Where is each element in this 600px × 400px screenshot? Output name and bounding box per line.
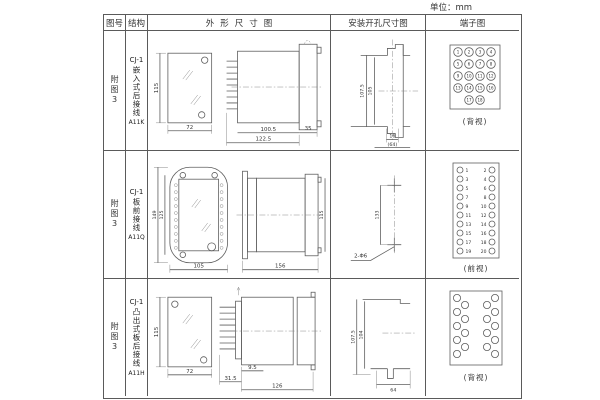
svg-text:13: 13 bbox=[455, 85, 461, 90]
model-code: A11K bbox=[129, 119, 145, 126]
svg-text:20: 20 bbox=[481, 248, 487, 254]
dim-body-length: 156 bbox=[275, 263, 286, 269]
svg-text:17: 17 bbox=[466, 97, 472, 102]
header-fig-no: 图号 bbox=[104, 15, 126, 31]
dim-span: 64 bbox=[390, 387, 396, 393]
svg-text:17: 17 bbox=[466, 239, 472, 245]
dim-front-height: 115 bbox=[154, 327, 160, 337]
header-terminal: 端子图 bbox=[426, 15, 519, 31]
row3-structure: CJ-1 凸出式板后接线 A11H bbox=[126, 279, 148, 396]
view-caption: (背视) bbox=[464, 372, 489, 382]
dim-outer-height: 149 bbox=[152, 210, 158, 219]
svg-text:18: 18 bbox=[477, 97, 483, 102]
svg-text:12: 12 bbox=[488, 73, 494, 78]
dim-body-length: 126 bbox=[272, 384, 283, 390]
svg-text:12: 12 bbox=[481, 212, 487, 218]
svg-text:16: 16 bbox=[488, 85, 494, 90]
row2-terminal-cell: 12 34 56 78 910 1112 1314 1516 1718 1920… bbox=[426, 151, 519, 279]
svg-text:6: 6 bbox=[484, 185, 487, 191]
row3-outline-cell: 115 72 9.5 31.5 126 bbox=[148, 279, 331, 396]
dim-front-width: 72 bbox=[186, 124, 193, 130]
dim-width: 105 bbox=[194, 263, 204, 269]
dim-flange-depth: 35 bbox=[305, 125, 312, 131]
dim-cutout-inner: 104 bbox=[359, 331, 365, 340]
clip-arrow bbox=[237, 287, 240, 295]
dim-inner-height: 125 bbox=[159, 210, 165, 219]
svg-text:2: 2 bbox=[484, 167, 487, 173]
structure-desc: 凸出式板后接线 bbox=[131, 308, 142, 368]
dim-side-height: 115 bbox=[319, 210, 325, 219]
catalog-page: 单位：mm 图号 结构 外形尺寸图 安装开孔尺寸图 端子图 附图3 CJ-1 嵌… bbox=[0, 0, 600, 400]
svg-text:13: 13 bbox=[466, 221, 472, 227]
svg-text:3: 3 bbox=[479, 49, 482, 54]
mount-hole bbox=[199, 111, 205, 117]
mount-hole bbox=[202, 56, 208, 62]
row1-terminal-cell: 1234 5678 9101112 13141516 1718 (背视) bbox=[426, 31, 519, 151]
row2-outline-cell: 149 125 105 156 115 bbox=[148, 151, 331, 279]
dim-cutout-outer: 107.5 bbox=[360, 84, 366, 98]
row1-install-cell: 107.5 105 16 (64) bbox=[331, 31, 426, 151]
dim-front-width: 72 bbox=[186, 369, 193, 375]
dim-cutout-outer: 107.5 bbox=[351, 330, 357, 344]
dim-pin-length: 31.5 bbox=[224, 376, 236, 382]
svg-text:15: 15 bbox=[477, 85, 483, 90]
svg-text:14: 14 bbox=[466, 85, 472, 90]
install-drawing-a11q: 133 2-Φ6 bbox=[331, 151, 425, 279]
outline-drawing-a11h: 115 72 9.5 31.5 126 bbox=[148, 279, 330, 396]
view-caption: (前视) bbox=[464, 263, 489, 273]
header-structure: 结构 bbox=[126, 15, 148, 31]
dim-body-length: 100.5 bbox=[261, 126, 277, 132]
outline-drawing-a11k: 115 72 100.5 35 122.5 bbox=[148, 31, 330, 151]
row3-fig-no: 附图3 bbox=[104, 279, 126, 396]
row2-install-cell: 133 2-Φ6 bbox=[331, 151, 426, 279]
svg-text:19: 19 bbox=[466, 248, 472, 254]
svg-text:9: 9 bbox=[466, 203, 469, 209]
terminal-circles bbox=[457, 167, 495, 254]
dim-slot-width: 16 bbox=[389, 133, 395, 139]
row3-install-cell: 107.5 104 64 bbox=[331, 279, 426, 396]
terminal-circles bbox=[453, 294, 498, 357]
svg-text:1: 1 bbox=[466, 167, 469, 173]
outline-drawing-a11q: 149 125 105 156 115 bbox=[148, 151, 330, 279]
model-label: CJ-1 bbox=[130, 56, 144, 64]
svg-text:8: 8 bbox=[484, 194, 487, 200]
terminal-numbers: 1234 5678 9101112 13141516 1718 bbox=[455, 49, 494, 102]
install-drawing-a11k: 107.5 105 16 (64) bbox=[331, 31, 425, 151]
svg-text:6: 6 bbox=[468, 61, 471, 66]
svg-text:9: 9 bbox=[457, 73, 460, 78]
svg-text:14: 14 bbox=[481, 221, 487, 227]
structure-desc: 嵌入式后接线 bbox=[131, 66, 142, 117]
svg-text:3: 3 bbox=[466, 176, 469, 182]
terminal-numbers: 12 34 56 78 910 1112 1314 1516 1718 1920 bbox=[466, 167, 487, 254]
row1-fig-no: 附图3 bbox=[104, 31, 126, 151]
dim-front-height: 115 bbox=[154, 82, 160, 92]
svg-text:8: 8 bbox=[490, 61, 493, 66]
install-drawing-a11h: 107.5 104 64 bbox=[331, 279, 425, 396]
svg-text:5: 5 bbox=[457, 61, 460, 66]
fig-label: 附图3 bbox=[109, 199, 120, 230]
row2-fig-no: 附图3 bbox=[104, 151, 126, 279]
unit-note: 单位：mm bbox=[430, 1, 500, 13]
svg-text:11: 11 bbox=[477, 73, 483, 78]
svg-text:2: 2 bbox=[468, 49, 471, 54]
hole-callout: 2-Φ6 bbox=[354, 253, 368, 259]
row1-structure: CJ-1 嵌入式后接线 A11K bbox=[126, 31, 148, 151]
terminal-drawing-a11q: 12 34 56 78 910 1112 1314 1516 1718 1920… bbox=[426, 151, 519, 279]
dim-hole-spacing: 133 bbox=[374, 210, 380, 219]
terminal-drawing-a11h: (背视) bbox=[426, 279, 519, 396]
svg-text:7: 7 bbox=[466, 194, 469, 200]
svg-text:1: 1 bbox=[457, 49, 460, 54]
svg-text:15: 15 bbox=[466, 230, 472, 236]
dim-cutout-inner: 105 bbox=[368, 86, 374, 95]
terminal-drawing-a11k: 1234 5678 9101112 13141516 1718 (背视) bbox=[426, 31, 519, 151]
svg-text:4: 4 bbox=[484, 176, 487, 182]
header-outline: 外形尺寸图 bbox=[148, 15, 331, 31]
model-label: CJ-1 bbox=[130, 188, 144, 196]
dim-span: (64) bbox=[387, 141, 397, 147]
svg-text:10: 10 bbox=[481, 203, 487, 209]
view-caption: (背视) bbox=[463, 116, 488, 126]
dimension-table: 图号 结构 外形尺寸图 安装开孔尺寸图 端子图 附图3 CJ-1 嵌入式后接线 … bbox=[103, 14, 522, 399]
fig-label: 附图3 bbox=[109, 322, 120, 353]
model-label: CJ-1 bbox=[130, 298, 144, 306]
model-code: A11Q bbox=[128, 234, 144, 241]
row2-structure: CJ-1 板前接线 A11Q bbox=[126, 151, 148, 279]
svg-text:4: 4 bbox=[490, 49, 493, 54]
svg-text:18: 18 bbox=[481, 239, 487, 245]
row3-terminal-cell: (背视) bbox=[426, 279, 519, 396]
svg-text:5: 5 bbox=[466, 185, 469, 191]
dim-total-length: 122.5 bbox=[256, 136, 272, 142]
svg-text:10: 10 bbox=[466, 73, 472, 78]
terminal-dots bbox=[174, 183, 223, 249]
row1-outline-cell: 115 72 100.5 35 122.5 bbox=[148, 31, 331, 151]
svg-text:11: 11 bbox=[466, 212, 472, 218]
svg-text:7: 7 bbox=[479, 61, 482, 66]
structure-desc: 板前接线 bbox=[131, 198, 142, 232]
header-install: 安装开孔尺寸图 bbox=[331, 15, 426, 31]
fig-label: 附图3 bbox=[109, 75, 120, 106]
dim-offset: 9.5 bbox=[248, 365, 257, 371]
svg-text:16: 16 bbox=[481, 230, 487, 236]
model-code: A11H bbox=[128, 370, 144, 377]
clip-hook bbox=[304, 40, 311, 44]
